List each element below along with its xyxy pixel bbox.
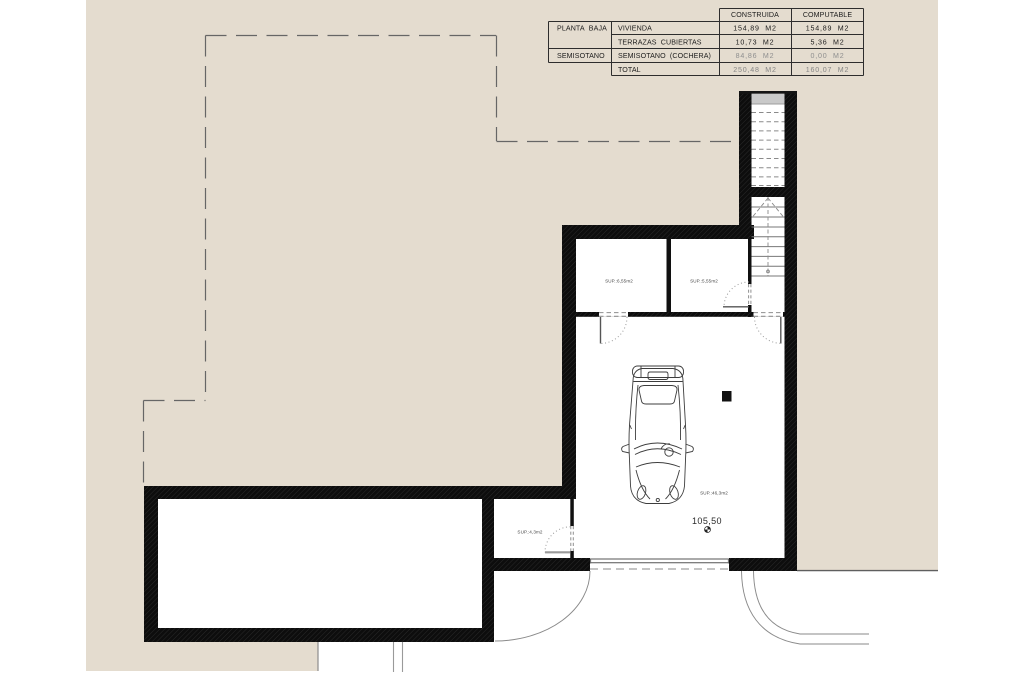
svg-text:105,50: 105,50 — [692, 516, 722, 526]
svg-text:SEMISOTANO: SEMISOTANO — [557, 52, 605, 60]
svg-text:0,00 M2: 0,00 M2 — [810, 52, 844, 60]
svg-text:5,36 M2: 5,36 M2 — [810, 39, 844, 47]
svg-text:SEMISOTANO (COCHERA): SEMISOTANO (COCHERA) — [618, 52, 711, 60]
svg-text:SUP.:5,55m2: SUP.:5,55m2 — [690, 279, 718, 284]
svg-text:250,48 M2: 250,48 M2 — [733, 66, 777, 74]
svg-text:SUP.:46,3m2: SUP.:46,3m2 — [700, 491, 728, 496]
svg-text:PLANTA BAJA: PLANTA BAJA — [557, 25, 607, 33]
svg-text:CONSTRUIDA: CONSTRUIDA — [731, 11, 779, 19]
svg-text:10,73 M2: 10,73 M2 — [736, 39, 775, 47]
svg-text:160,07 M2: 160,07 M2 — [806, 66, 850, 74]
svg-text:SUP.:4,3m2: SUP.:4,3m2 — [517, 530, 543, 535]
svg-text:TOTAL: TOTAL — [618, 66, 641, 74]
svg-text:COMPUTABLE: COMPUTABLE — [803, 11, 853, 19]
svg-text:SUP.:6,55m2: SUP.:6,55m2 — [605, 279, 633, 284]
svg-text:VIVIENDA: VIVIENDA — [618, 25, 652, 33]
svg-text:84,86 M2: 84,86 M2 — [736, 52, 775, 60]
svg-text:154,89 M2: 154,89 M2 — [733, 25, 777, 33]
svg-text:TERRAZAS CUBIERTAS: TERRAZAS CUBIERTAS — [618, 39, 702, 47]
svg-text:154,89 M2: 154,89 M2 — [806, 25, 850, 33]
